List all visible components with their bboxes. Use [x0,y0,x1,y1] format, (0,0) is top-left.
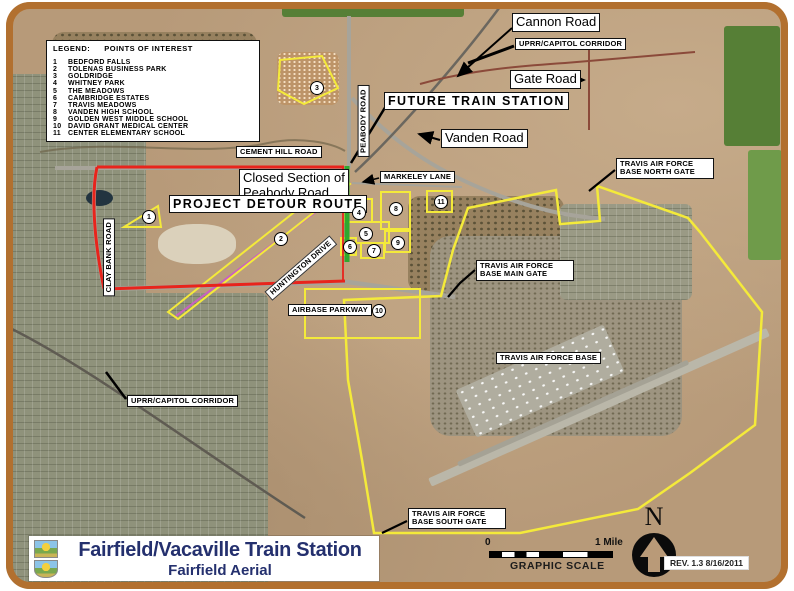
legend-item-label: DAVID GRANT MEDICAL CENTER [68,123,255,130]
legend-item-label: CENTER ELEMENTARY SCHOOL [68,130,255,137]
city-logo-icon [34,540,58,558]
legend-item: 2TOLENAS BUSINESS PARK [53,66,255,73]
north-letter: N [626,504,682,530]
poi-marker-2: 2 [274,232,288,246]
legend-item-num: 9 [53,116,68,123]
railroad-uprr-south [10,328,305,518]
label-tafb-main-gate: TRAVIS AIR FORCE BASE MAIN GATE [476,260,574,281]
legend-heading-title: POINTS OF INTEREST [104,44,193,53]
vanden-road-leader [419,134,440,140]
poi-marker-7: 7 [367,244,381,258]
label-uprr-capitol-corridor-bottom: UPRR/CAPITOL CORRIDOR [127,395,238,407]
poi-marker-9: 9 [391,236,405,250]
map-title: Fairfield/Vacaville Train Station [66,538,374,562]
legend-item-label: WHITNEY PARK [68,80,255,87]
title-text: Fairfield/Vacaville Train Station Fairfi… [61,536,379,581]
poi-marker-8: 8 [389,202,403,216]
legend-item-label: GOLDEN WEST MIDDLE SCHOOL [68,116,255,123]
legend-item: 9GOLDEN WEST MIDDLE SCHOOL [53,116,255,123]
legend-item-num: 10 [53,123,68,130]
legend-item-num: 7 [53,102,68,109]
goldridge-outline [278,56,338,104]
label-uprr-capitol-corridor-top: UPRR/CAPITOL CORRIDOR [515,38,626,50]
label-tafb-south-gate: TRAVIS AIR FORCE BASE SOUTH GATE [408,508,506,529]
scale-caption: GRAPHIC SCALE [510,560,605,572]
legend-box: LEGEND: POINTS OF INTEREST 1BEDFORD FALL… [46,40,260,142]
legend-item-num: 6 [53,95,68,102]
city-seal-icon [34,560,58,578]
legend-item-num: 11 [53,130,68,137]
poi-marker-3: 3 [310,81,324,95]
label-future-train-station: FUTURE TRAIN STATION [384,92,569,110]
main-gate-leader [448,270,475,297]
poi-marker-1: 1 [142,210,156,224]
aerial-map-canvas: LEGEND: POINTS OF INTEREST 1BEDFORD FALL… [0,0,794,591]
legend-item-label: TRAVIS MEADOWS [68,102,255,109]
legend-item-num: 8 [53,109,68,116]
poi-marker-5: 5 [359,227,373,241]
north-arrow: N [626,504,682,582]
label-cement-hill-road: CEMENT HILL ROAD [236,146,322,158]
legend-heading-label: LEGEND: [53,44,90,53]
legend-item-label: CAMBRIDGE ESTATES [68,95,255,102]
legend-item-label: THE MEADOWS [68,88,255,95]
poi-marker-10: 10 [372,304,386,318]
legend-item: 11CENTER ELEMENTARY SCHOOL [53,130,255,137]
label-peabody-road: PEABODY ROAD [358,85,370,157]
scale-bar [489,551,613,558]
legend-item-num: 1 [53,59,68,66]
label-airbase-parkway: AIRBASE PARKWAY [288,304,372,316]
poi-marker-4: 4 [352,206,366,220]
legend-item-label: TOLENAS BUSINESS PARK [68,66,255,73]
legend-item: 10DAVID GRANT MEDICAL CENTER [53,123,255,130]
legend-item: 1BEDFORD FALLS [53,59,255,66]
legend-item-num: 5 [53,88,68,95]
label-cannon-road: Cannon Road [512,13,600,32]
label-vanden-road: Vanden Road [441,129,528,148]
legend-heading: LEGEND: POINTS OF INTEREST [53,44,255,53]
markeley-lane-leader [363,178,379,182]
legend-item-label: GOLDRIDGE [68,73,255,80]
legend-item-num: 3 [53,73,68,80]
label-travis-afb: TRAVIS AIR FORCE BASE [496,352,601,364]
poi-marker-11: 11 [434,195,448,209]
legend-item-num: 2 [53,66,68,73]
vanden-road-line [352,98,605,219]
label-gate-road: Gate Road [510,70,581,89]
label-project-detour-route: PROJECT DETOUR ROUTE [169,195,367,213]
legend-item-num: 4 [53,80,68,87]
legend-item: 8VANDEN HIGH SCHOOL [53,109,255,116]
legend-item: 3GOLDRIDGE [53,73,255,80]
poi-marker-6: 6 [343,240,357,254]
north-arrow-icon [629,530,679,580]
scale-end-label: 1 Mile [595,537,623,548]
legend-item: 4WHITNEY PARK [53,80,255,87]
legend-item: 5THE MEADOWS [53,88,255,95]
legend-item: 7TRAVIS MEADOWS [53,102,255,109]
scale-start-label: 0 [485,537,491,548]
legend-item-label: BEDFORD FALLS [68,59,255,66]
city-logo [29,536,61,581]
label-clay-bank-road: CLAY BANK ROAD [103,218,115,296]
south-gate-leader [382,521,407,533]
label-markeley-lane: MARKELEY LANE [380,171,455,183]
legend-item-label: VANDEN HIGH SCHOOL [68,109,255,116]
map-subtitle: Fairfield Aerial [61,562,379,579]
title-block: Fairfield/Vacaville Train Station Fairfi… [29,536,379,581]
legend-item: 6CAMBRIDGE ESTATES [53,95,255,102]
label-tafb-north-gate: TRAVIS AIR FORCE BASE NORTH GATE [616,158,714,179]
revision-note: REV. 1.3 8/16/2011 [664,556,749,570]
uprr-top-leader [468,46,514,63]
markeley-lane-line [352,183,462,187]
